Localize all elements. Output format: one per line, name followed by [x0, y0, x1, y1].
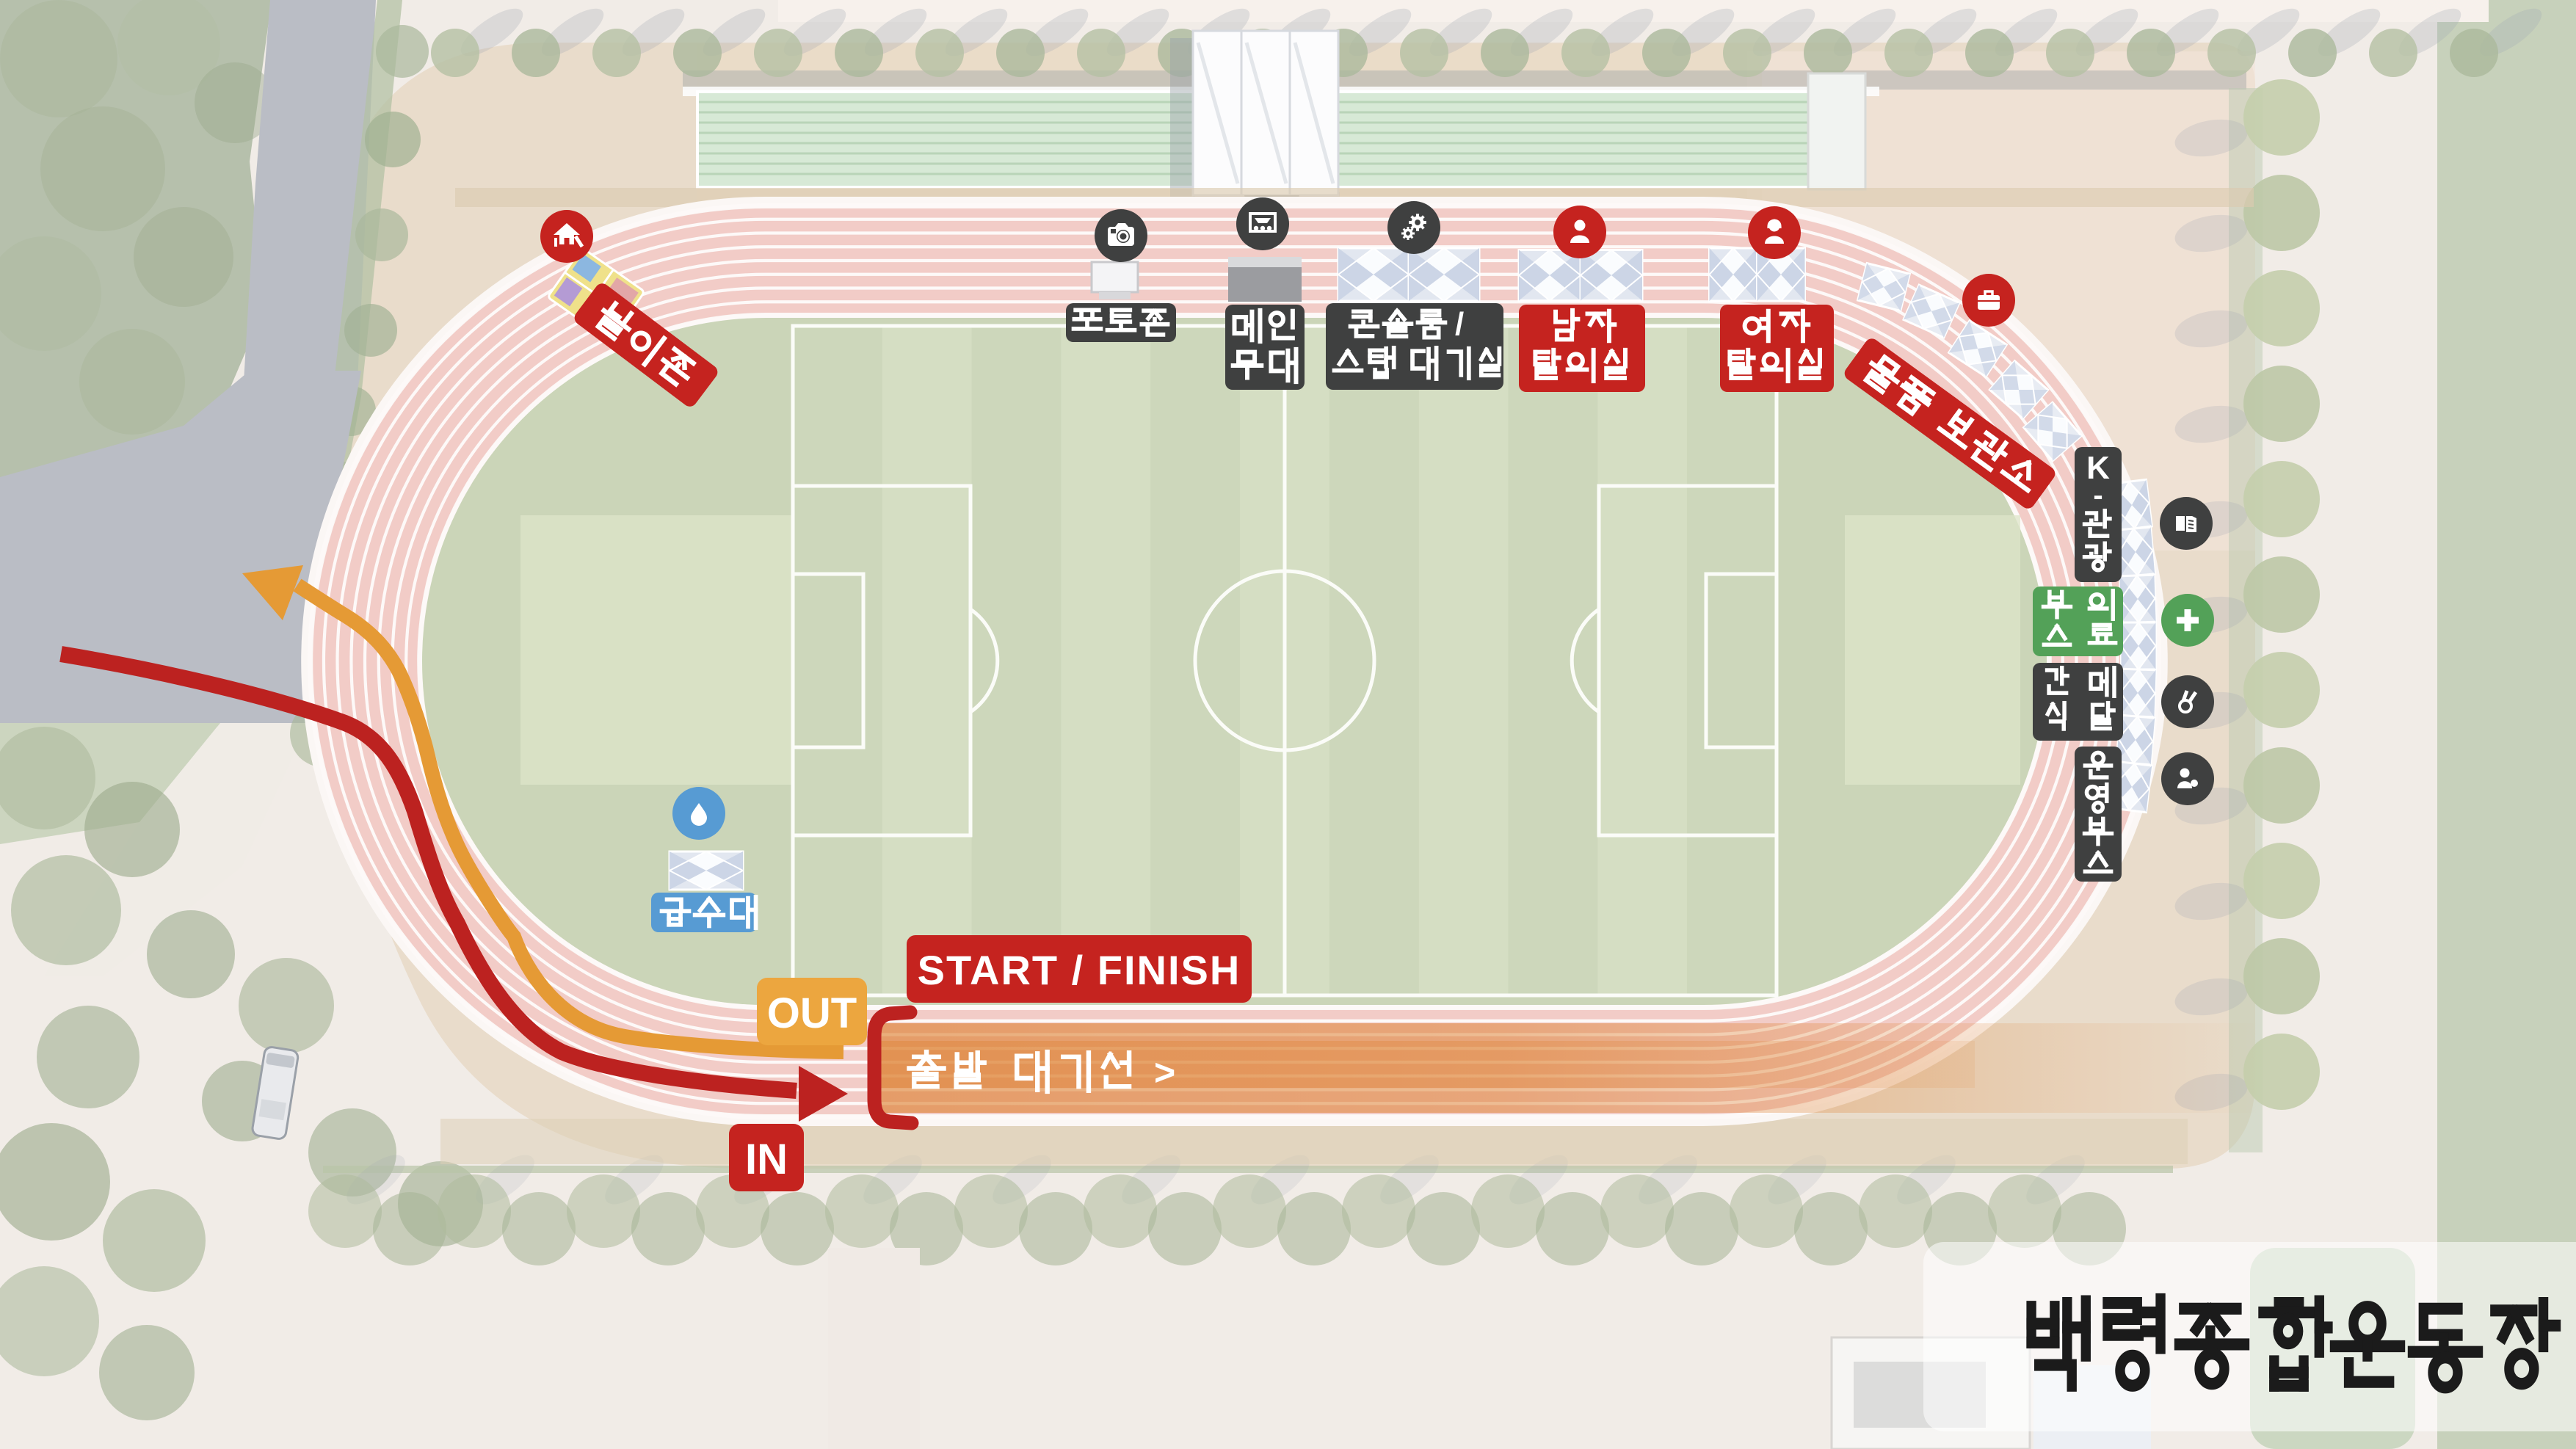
svg-text:IN: IN	[745, 1136, 788, 1183]
svg-text:/: /	[1455, 306, 1464, 342]
svg-text:START / FINISH: START / FINISH	[918, 947, 1241, 993]
svg-text:-: -	[2093, 479, 2102, 512]
svg-text:OUT: OUT	[767, 989, 857, 1037]
svg-text:>: >	[1154, 1052, 1175, 1093]
